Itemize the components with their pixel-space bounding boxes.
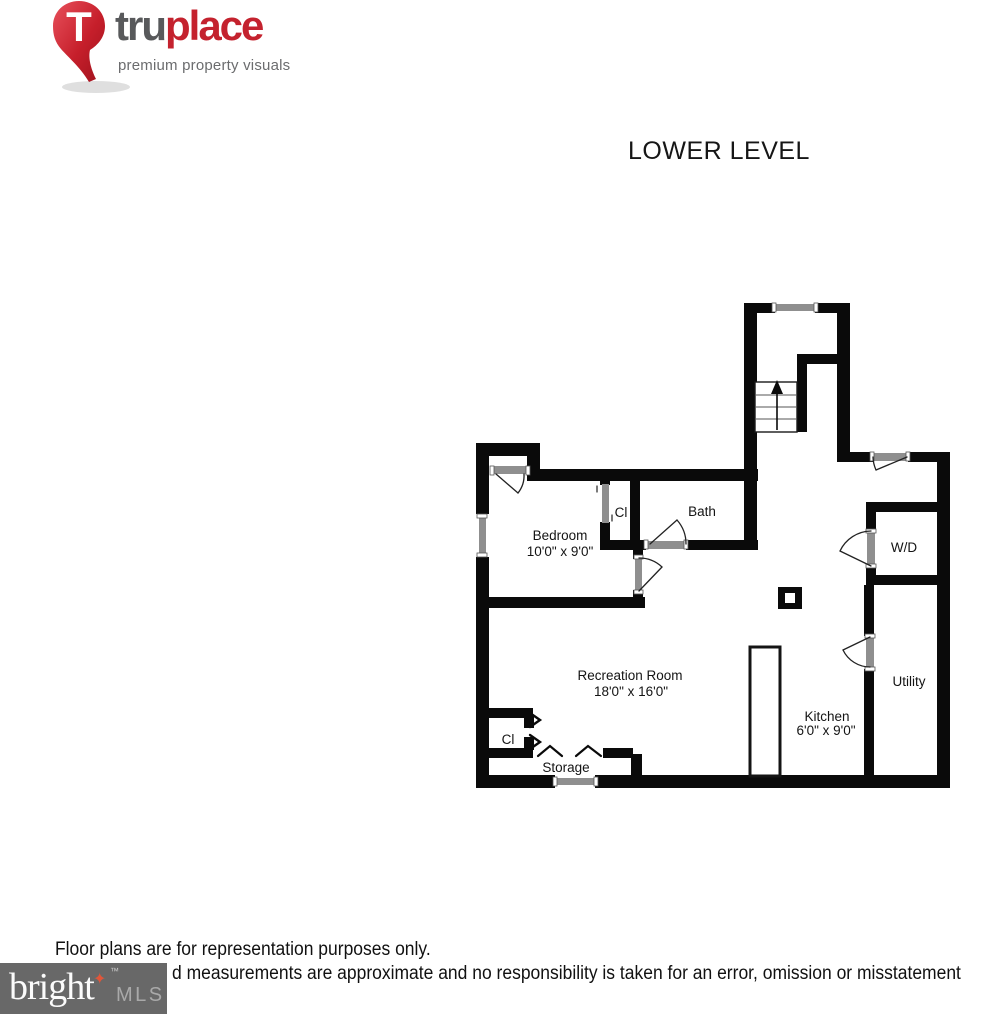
room-label-closet-lower: Cl: [502, 732, 515, 747]
room-dims-recreation: 18'0" x 16'0": [594, 684, 668, 699]
star-icon: ✦: [93, 969, 106, 989]
room-label-storage: Storage: [542, 760, 589, 775]
trademark-symbol: ™: [110, 966, 119, 976]
door-closet-upper: [597, 484, 612, 523]
door-entry-top-right: [870, 452, 910, 470]
room-dims-bedroom: 10'0" x 9'0": [527, 544, 594, 559]
door-wd: [840, 529, 876, 568]
room-label-recreation: Recreation Room: [577, 668, 682, 683]
bright-mls-logo: bright ✦ ™ MLS: [0, 963, 167, 1014]
room-label-utility: Utility: [893, 674, 926, 689]
room-label-closet-upper: Cl: [615, 505, 628, 520]
door-utility: [843, 634, 875, 671]
floor-plan: Bedroom 10'0" x 9'0" Cl Bath Recreation …: [0, 0, 996, 1014]
window-left-wall: [477, 514, 487, 557]
support-column: [778, 587, 802, 609]
bifold-doors-storage: [538, 746, 601, 756]
room-label-bath: Bath: [688, 504, 716, 519]
window-storage-bottom: [553, 777, 598, 786]
room-label-kitchen: Kitchen: [804, 709, 849, 724]
disclaimer-line1: Floor plans are for representation purpo…: [55, 939, 431, 961]
kitchen-counter: [750, 647, 780, 776]
door-bedroom: [634, 555, 662, 594]
door-bedroom-exterior: [490, 466, 530, 493]
room-dims-kitchen: 6'0" x 9'0": [796, 723, 855, 738]
disclaimer-line2: d measurements are approximate and no re…: [172, 963, 961, 985]
bright-mls-suffix: MLS: [116, 984, 165, 1007]
bright-mls-brand: bright: [9, 965, 94, 1009]
door-bath: [644, 520, 688, 549]
staircase: [755, 380, 797, 432]
room-label-bedroom: Bedroom: [533, 528, 588, 543]
room-label-wd: W/D: [891, 540, 917, 555]
window-stair-top: [772, 303, 818, 312]
